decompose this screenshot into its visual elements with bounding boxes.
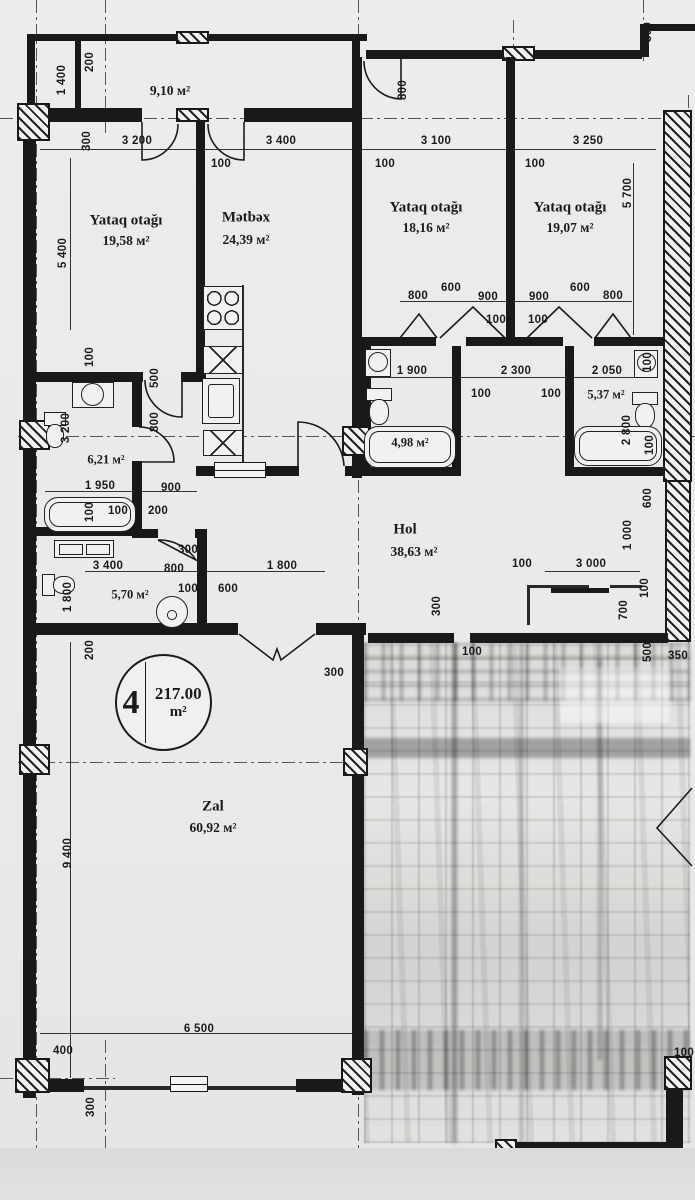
room-area-bedroom2: 18,16 м² — [403, 220, 450, 236]
closet-line — [551, 588, 609, 593]
dim-label: 3 000 — [576, 558, 606, 570]
wall — [244, 108, 356, 122]
floor-plan: 4 217.00 m² 9,10 м² Yataq otağı 19,58 м²… — [0, 0, 695, 1200]
dim-label: 800 — [603, 290, 623, 302]
room-label-bedroom3: Yataq otağı — [534, 200, 607, 217]
dim-label: 100 — [642, 352, 654, 372]
room-label-hall: Hol — [393, 522, 416, 539]
wall-pier-hatch — [176, 108, 209, 122]
wall — [345, 466, 362, 476]
toilet-bowl-icon — [369, 399, 389, 425]
wall — [196, 122, 205, 374]
dim-label: 100 — [639, 578, 651, 598]
column-hatch — [664, 1056, 692, 1090]
dim-label: 500 — [642, 642, 654, 662]
room-area-balcony: 9,10 м² — [150, 83, 190, 99]
cabinet-icon — [203, 430, 243, 456]
dim-label: 1 400 — [56, 65, 68, 95]
closet-line — [527, 585, 530, 625]
dim-label: 300 — [431, 596, 443, 616]
dim-label: 700 — [618, 600, 630, 620]
dim-label: 3 200 — [60, 413, 72, 443]
axis-line — [36, 0, 37, 1200]
dim-label: 350 — [668, 650, 688, 662]
dim-line — [40, 149, 656, 150]
room-label-bedroom2: Yataq otağı — [390, 200, 463, 217]
kitchen-window — [214, 462, 266, 478]
dim-label: 300 — [642, 22, 654, 42]
dim-line — [545, 571, 640, 572]
wall — [368, 633, 454, 643]
dim-label: 3 400 — [266, 135, 296, 147]
dim-label: 100 — [471, 388, 491, 400]
wall — [75, 40, 81, 114]
wall — [197, 529, 207, 633]
dim-label: 400 — [53, 1045, 73, 1057]
dim-label: 600 — [441, 282, 461, 294]
dim-label: 1 800 — [62, 582, 74, 612]
closet-line — [610, 585, 642, 588]
wall — [565, 467, 665, 476]
dim-label: 5 700 — [622, 178, 634, 208]
smudge-streak — [452, 643, 457, 1143]
dim-label: 200 — [84, 52, 96, 72]
wall — [594, 337, 663, 346]
dim-label: 100 — [178, 583, 198, 595]
cabinet-icon — [203, 346, 243, 374]
smudge-streak — [520, 643, 523, 1143]
dim-label: 100 — [84, 502, 96, 522]
column-hatch — [341, 1058, 372, 1093]
dim-label: 100 — [375, 158, 395, 170]
dim-label: 100 — [211, 158, 231, 170]
dim-label: 5 400 — [57, 238, 69, 268]
dim-label: 100 — [108, 505, 128, 517]
dim-label: 100 — [528, 314, 548, 326]
wall — [23, 623, 238, 635]
dim-label: 800 — [408, 290, 428, 302]
sink-basin — [208, 384, 234, 418]
dim-label: 3 100 — [421, 135, 451, 147]
dim-label: 300 — [178, 544, 198, 556]
dim-label: 800 — [164, 563, 184, 575]
dim-label: 300 — [324, 667, 344, 679]
toilet-bowl-icon — [635, 403, 655, 428]
unit-number: 4 — [117, 656, 145, 749]
room-area-wc: 5,70 м² — [111, 588, 148, 603]
living-window — [170, 1076, 208, 1092]
dim-line — [400, 301, 632, 302]
dim-label: 800 — [397, 80, 409, 100]
radiator-segment — [86, 544, 110, 555]
dim-label: 900 — [161, 482, 181, 494]
dim-label: 1 900 — [397, 365, 427, 377]
wall — [132, 529, 158, 538]
dim-label: 600 — [642, 488, 654, 508]
room-area-bath2: 4,98 м² — [391, 436, 428, 451]
dim-label: 2 800 — [621, 415, 633, 445]
dim-label: 500 — [149, 368, 161, 388]
column-hatch — [15, 1058, 50, 1093]
dim-label: 300 — [85, 1097, 97, 1117]
unit-stamp: 4 217.00 m² — [115, 654, 212, 751]
stove-icon — [203, 286, 243, 330]
window-pier-hatch — [176, 31, 209, 44]
dim-label: 100 — [84, 347, 96, 367]
wall — [132, 372, 142, 427]
washbasin-bowl-icon — [368, 352, 388, 372]
room-area-kitchen: 24,39 м² — [223, 232, 270, 248]
radiator-icon — [54, 540, 114, 558]
smudge-band — [364, 1030, 690, 1090]
dim-label: 1 000 — [622, 520, 634, 550]
dim-line — [368, 377, 656, 378]
dim-label: 2 050 — [592, 365, 622, 377]
dim-label: 200 — [148, 505, 168, 517]
washbasin-bowl-icon — [81, 383, 104, 406]
wall — [565, 346, 574, 476]
dim-label: 900 — [529, 291, 549, 303]
dim-label: 600 — [218, 583, 238, 595]
dim-label: 100 — [541, 388, 561, 400]
dim-label: 200 — [84, 640, 96, 660]
room-area-bedroom3: 19,07 м² — [547, 220, 594, 236]
smudge-light-patch — [560, 668, 670, 723]
wall — [466, 337, 563, 346]
dim-line — [70, 158, 71, 330]
washing-machine-icon — [156, 596, 188, 628]
room-area-bath1: 6,21 м² — [87, 453, 124, 468]
column-hatch — [343, 748, 368, 776]
party-wall-hatch — [663, 110, 692, 482]
wall — [23, 372, 143, 382]
smudge-band — [364, 738, 690, 758]
dim-label: 2 300 — [501, 365, 531, 377]
unit-total-area: 217.00 — [155, 684, 202, 704]
room-label-kitchen: Mətbəx — [222, 210, 270, 227]
dim-label: 1 800 — [267, 560, 297, 572]
dim-label: 3 250 — [573, 135, 603, 147]
kitchen-sink-icon — [202, 378, 240, 424]
room-area-bedroom1: 19,58 м² — [103, 233, 150, 249]
dim-label: 100 — [462, 646, 482, 658]
wall — [362, 467, 461, 476]
room-area-hall: 38,63 м² — [391, 544, 438, 560]
dim-label: 100 — [525, 158, 545, 170]
unit-area-unit: m² — [170, 704, 187, 721]
dim-label: 9 400 — [62, 838, 74, 868]
room-label-bedroom1: Yataq otağı — [90, 213, 163, 230]
dim-label: 3 200 — [122, 135, 152, 147]
dim-label: 900 — [478, 291, 498, 303]
dim-label: 100 — [674, 1047, 694, 1059]
dim-label: 1 950 — [85, 480, 115, 492]
radiator-segment — [59, 544, 83, 555]
wall — [352, 633, 364, 1095]
dim-label: 300 — [81, 131, 93, 151]
wall — [352, 57, 362, 478]
party-wall-hatch — [665, 480, 691, 642]
dim-label: 100 — [486, 314, 506, 326]
wall — [23, 108, 36, 1098]
wall — [356, 337, 436, 346]
column-hatch — [17, 103, 50, 141]
dim-label: 100 — [644, 435, 656, 455]
dim-label: 3 400 — [93, 560, 123, 572]
wall — [470, 633, 668, 643]
wall — [506, 57, 515, 339]
dim-label: 100 — [512, 558, 532, 570]
room-area-living: 60,92 м² — [190, 820, 237, 836]
page-bottom-margin — [0, 1148, 695, 1200]
room-label-living: Zal — [202, 799, 224, 816]
column-hatch — [19, 744, 50, 775]
room-area-bath3: 5,37 м² — [587, 388, 624, 403]
wall — [296, 1079, 346, 1092]
dim-label: 600 — [570, 282, 590, 294]
dim-label: 6 500 — [184, 1023, 214, 1035]
dim-label: 800 — [149, 412, 161, 432]
